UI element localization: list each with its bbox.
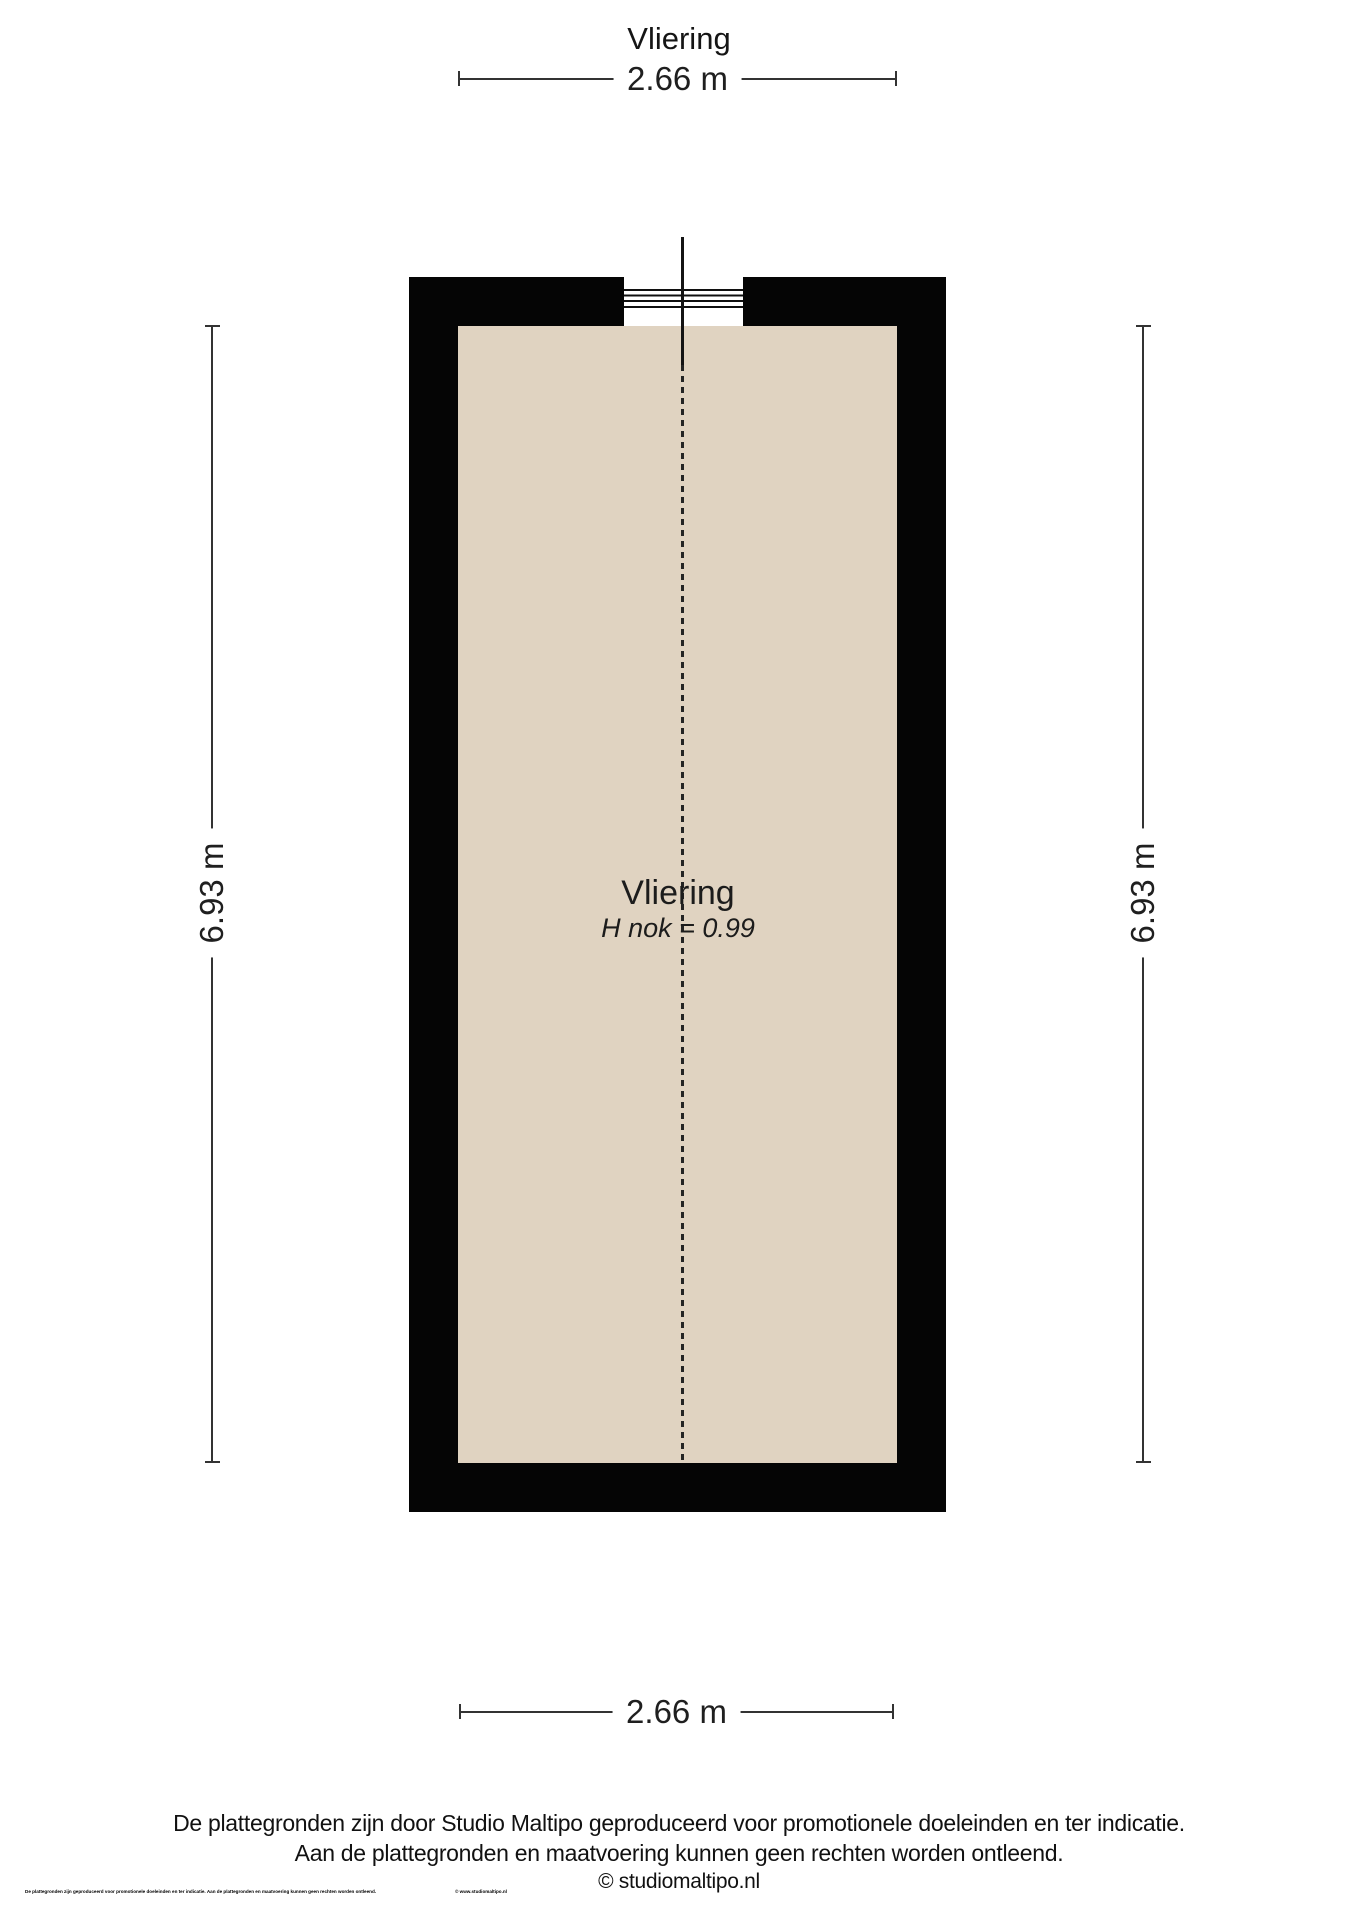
dimension-tick — [892, 1704, 894, 1719]
footer-disclaimer-line1: De plattegronden zijn door Studio Maltip… — [0, 1808, 1358, 1838]
dimension-top: 2.66 m — [458, 71, 897, 87]
dimension-tick — [1136, 1461, 1151, 1463]
ridge-line-marker — [681, 237, 684, 365]
dimension-left-value: 6.93 m — [193, 829, 231, 958]
dimension-right-value: 6.93 m — [1124, 829, 1162, 958]
dimension-tick — [459, 1704, 461, 1719]
dimension-tick — [895, 71, 897, 86]
room-labels: Vliering H nok = 0.99 — [478, 874, 878, 944]
dimension-tick — [205, 325, 220, 327]
footer: De plattegronden zijn door Studio Maltip… — [0, 1808, 1358, 1895]
dimension-left: 6.93 m — [205, 325, 220, 1463]
page-title: Vliering — [0, 22, 1358, 56]
dimension-bottom-value: 2.66 m — [612, 1693, 741, 1731]
dimension-tick — [458, 71, 460, 86]
footer-disclaimer-line2: Aan de plattegronden en maatvoering kunn… — [0, 1838, 1358, 1868]
room-height-note: H nok = 0.99 — [478, 912, 878, 944]
footer-fineprint-copyright: © www.studiomaltipo.nl — [455, 1889, 507, 1894]
dimension-right: 6.93 m — [1136, 325, 1151, 1463]
dimension-top-value: 2.66 m — [613, 60, 742, 98]
room-name: Vliering — [478, 874, 878, 912]
footer-fineprint: De plattegronden zijn geproduceerd voor … — [25, 1889, 376, 1894]
floorplan-page: Vliering 2.66 m 6.93 m 6.93 m Vliering H… — [0, 0, 1358, 1920]
dimension-bottom: 2.66 m — [459, 1704, 894, 1720]
dimension-tick — [205, 1461, 220, 1463]
dimension-tick — [1136, 325, 1151, 327]
